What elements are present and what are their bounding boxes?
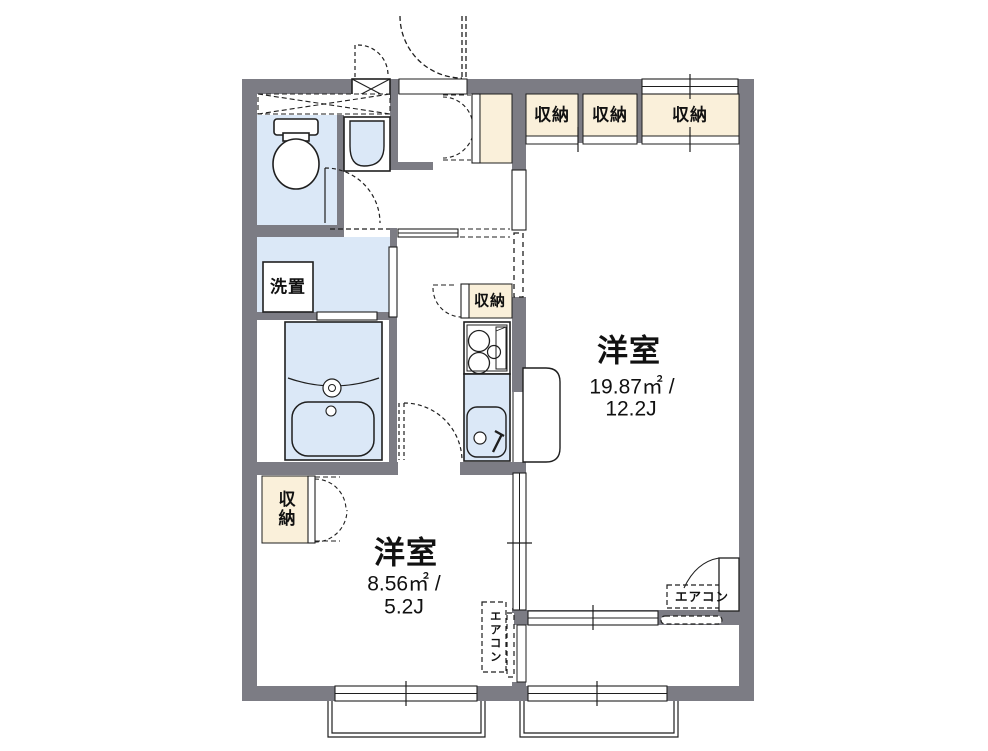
small-room-sqm: 8.56㎡ / (367, 574, 441, 595)
storage-label-top-3: 収納 (672, 107, 708, 124)
aircon-label-bottom: エアコン (488, 610, 500, 664)
small-room-jo: 5.2J (384, 597, 424, 618)
unit-bath (285, 322, 382, 460)
storage-label-top-1: 収納 (534, 107, 570, 124)
washer-place-label: 洗置 (270, 279, 306, 296)
large-room-jo: 12.2J (605, 399, 656, 420)
aircon-label-right: エアコン (675, 591, 729, 604)
stove (464, 322, 510, 374)
entrance-door (399, 16, 467, 94)
large-room-name: 洋室 (597, 336, 661, 367)
storage-label-kitchen: 収納 (474, 294, 506, 309)
storage-label-top-2: 収納 (592, 107, 628, 124)
overhead-shelf (258, 94, 390, 114)
refrigerator-space (523, 368, 560, 462)
small-room-name: 洋室 (374, 538, 438, 569)
storage-label-bedroom: 収納 (277, 490, 294, 528)
floorplan: 収納 収納 収納 収納 収納 洗置 エアコン エアコン 洋室 19.87㎡ / … (0, 0, 988, 751)
washroom-slide-door (389, 247, 397, 317)
kitchen-sink (464, 374, 510, 461)
meter-box (352, 45, 390, 99)
balconies (328, 701, 678, 737)
wash-basin (344, 117, 390, 171)
toilet (273, 119, 319, 189)
large-room-sqm: 19.87㎡ / (589, 377, 674, 398)
